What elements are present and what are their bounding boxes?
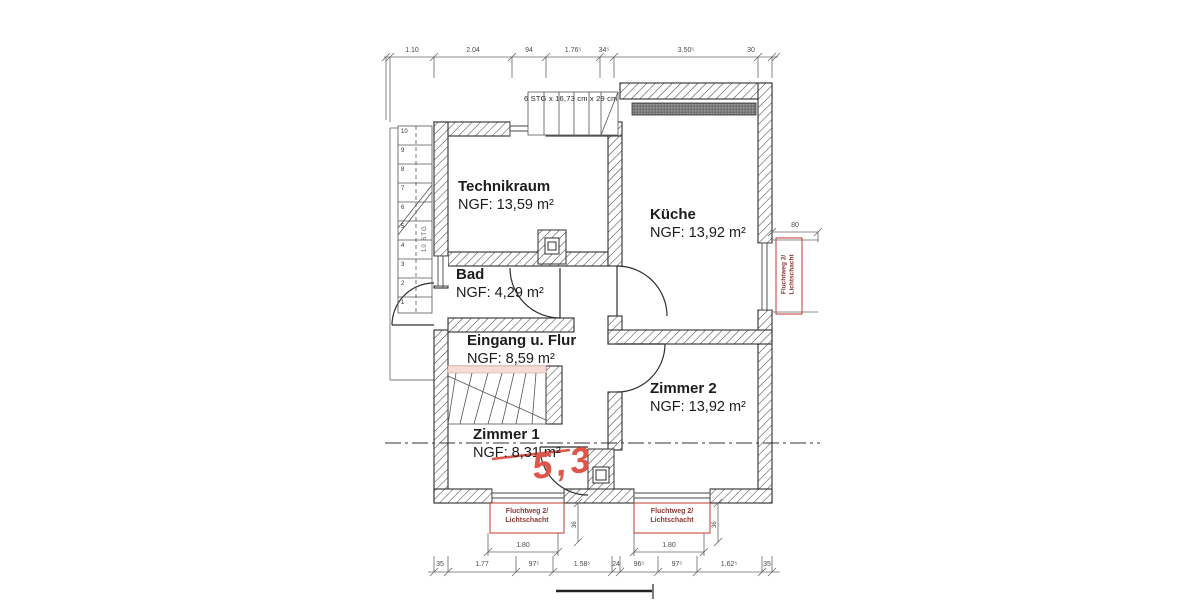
room-label-flur: Eingang u. Flur NGF: 8,59 m² [467,332,576,368]
dimension-label: 1.62⁵ [721,561,738,568]
escape-route-line1: Fluchtweg 2/ [637,507,707,516]
step-number: 2 [401,281,404,287]
room-area: NGF: 13,59 m² [458,196,554,214]
dimension-label: 1.77 [475,561,489,568]
step-number: 8 [401,167,404,173]
escape-route-label-right: Fluchtweg 2/ Lichtschacht [781,232,798,316]
room-area: NGF: 13,92 m² [650,224,746,242]
room-label-kueche: Küche NGF: 13,92 m² [650,206,746,242]
escape-route-line2: Lichtschacht [789,232,797,316]
dimension-label: 80 [791,222,799,229]
room-label-technikraum: Technikraum NGF: 13,59 m² [458,178,554,214]
escape-route-label-bottom-right: Fluchtweg 2/ Lichtschacht [637,507,707,525]
step-number: 10 [401,129,408,135]
handwritten-correction: 5,3 [529,438,596,488]
room-area: NGF: 8,59 m² [467,350,576,368]
room-name: Zimmer 1 [473,426,561,444]
dimension-label: 1.80 [662,542,676,549]
step-number: 9 [401,148,404,154]
room-area: NGF: 13,92 m² [650,398,746,416]
kitchen-wall-band [632,103,756,115]
step-number: 6 [401,205,404,211]
escape-route-line1: Fluchtweg 2/ [781,232,789,316]
step-number: 7 [401,186,404,192]
step-number: 4 [401,243,404,249]
dimension-label: 2.04 [466,47,480,54]
dimension-label: 96⁵ [634,561,645,568]
top-stair-label: 6 STG x 16,73 cm x 29 cm [524,94,618,103]
dimension-label: 30 [747,47,755,54]
dimension-label: 36 [712,521,718,528]
room-name: Zimmer 2 [650,380,746,398]
step-number: 3 [401,262,404,268]
room-label-zimmer2: Zimmer 2 NGF: 13,92 m² [650,380,746,416]
room-name: Küche [650,206,746,224]
dimension-label: 36 [572,521,578,528]
dimension-label: 35 [436,561,444,568]
escape-route-line2: Lichtschacht [492,516,562,525]
dimension-label: 1.80 [516,542,530,549]
scale-bar [556,584,653,599]
room-area: NGF: 4,29 m² [456,284,544,302]
dimension-label: 34⁵ [599,47,610,54]
dimension-label: 35 [763,561,771,568]
step-number: 1 [401,300,404,306]
dimension-label: 1.10 [405,47,419,54]
room-name: Eingang u. Flur [467,332,576,350]
porch-outline [390,128,434,380]
dimension-label: 1.76⁵ [565,47,582,54]
step-number: 5 [401,224,404,230]
left-stair-label: 10 STG [422,225,428,252]
dimension-label: 97⁵ [672,561,683,568]
floor-plan-drawing [0,0,1200,600]
dimension-label: 97⁵ [529,561,540,568]
dimension-label: 94 [525,47,533,54]
escape-route-line2: Lichtschacht [637,516,707,525]
escape-route-label-bottom-left: Fluchtweg 2/ Lichtschacht [492,507,562,525]
dimension-label: 3.50⁵ [678,47,695,54]
escape-route-line1: Fluchtweg 2/ [492,507,562,516]
chimney-symbol [538,230,566,264]
dimension-label: 24 [612,561,620,568]
room-name: Bad [456,266,544,284]
room-name: Technikraum [458,178,554,196]
dimension-label: 1.58⁵ [574,561,591,568]
floor-plan-canvas: Technikraum NGF: 13,59 m² Küche NGF: 13,… [0,0,1200,600]
room-label-bad: Bad NGF: 4,29 m² [456,266,544,302]
